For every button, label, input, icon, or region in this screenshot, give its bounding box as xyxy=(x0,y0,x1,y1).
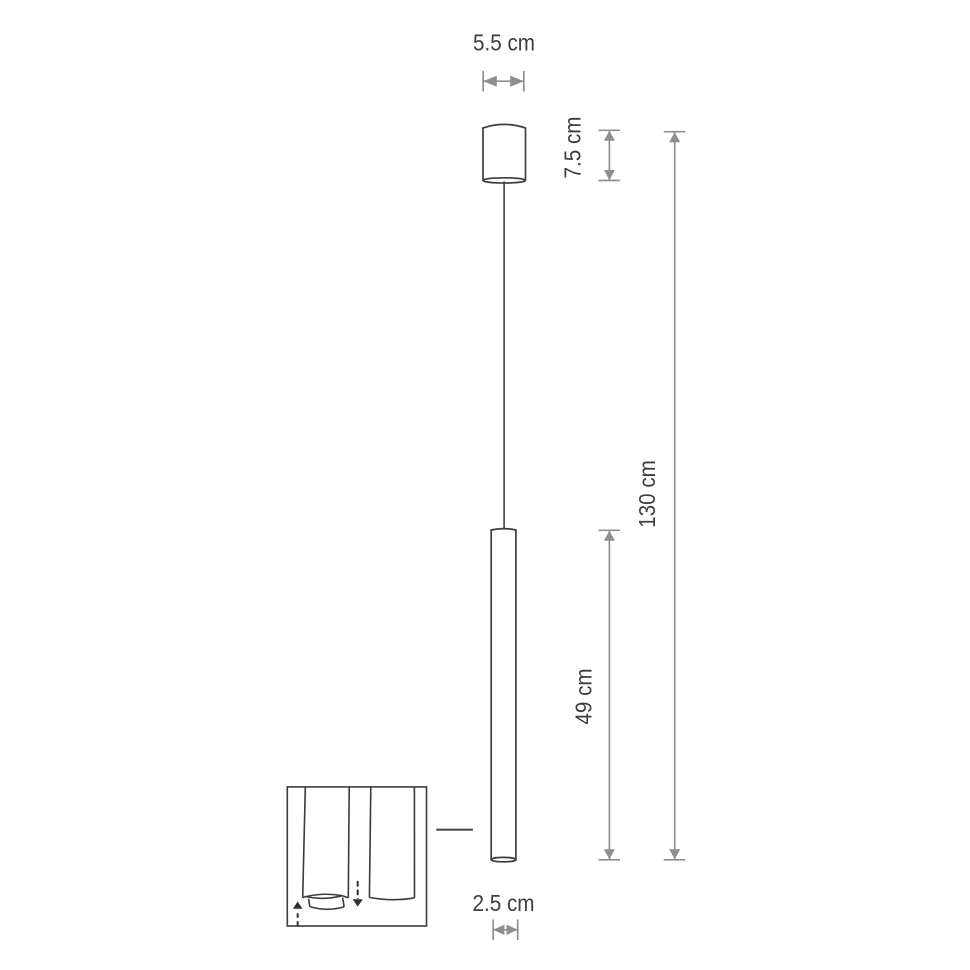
svg-text:5.5 cm: 5.5 cm xyxy=(473,29,535,56)
svg-text:49 cm: 49 cm xyxy=(570,668,597,724)
svg-text:130 cm: 130 cm xyxy=(634,460,661,528)
svg-text:7.5 cm: 7.5 cm xyxy=(559,116,586,178)
svg-text:2.5 cm: 2.5 cm xyxy=(472,890,534,917)
